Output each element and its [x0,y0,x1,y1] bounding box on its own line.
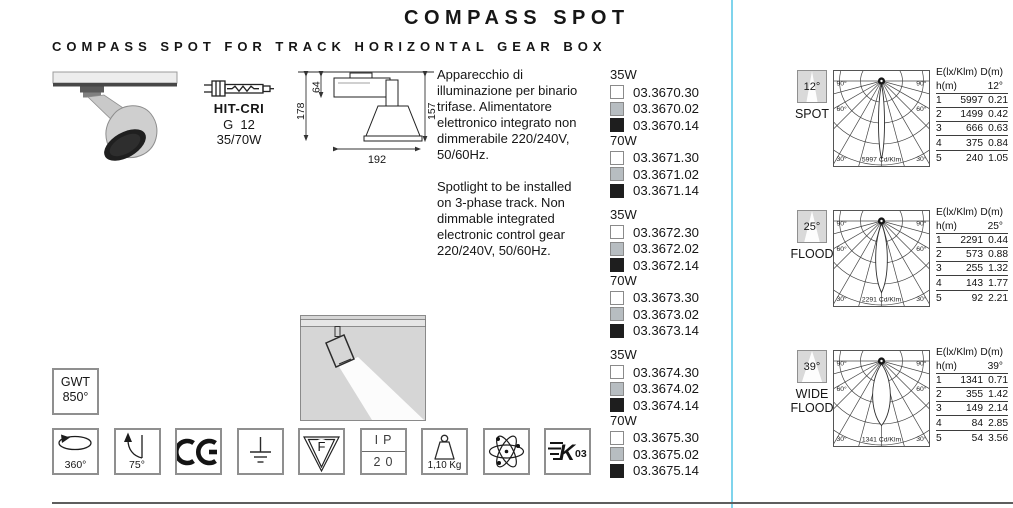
svg-text:90°: 90° [916,80,927,88]
photometry-group-flood: 25° FLOOD 90°90°60°60°30°30°2291 Cd/Klm … [790,202,1013,317]
col-header-angle: 39° [988,361,1008,372]
page-title: COMPASS SPOT [404,7,630,30]
product-code-row: 03.3670.02 [610,101,724,118]
photometry-table-row: 5922.21 [936,291,1008,305]
finish-swatch-grey [610,447,624,461]
ce-mark-icon [175,428,222,475]
page-fold-divider [731,0,733,508]
wattage-label: 35W [610,68,724,82]
photometry-table-row: 113410.71 [936,374,1008,388]
wattage-label: 70W [610,134,724,148]
wattage-label: 70W [610,414,724,428]
photometry-table-row: 4842.85 [936,416,1008,430]
height-value: 1 [936,375,946,386]
product-code: 03.3671.02 [633,167,699,182]
illuminance-value: 1499 [946,109,983,120]
product-code-row: 03.3670.14 [610,117,724,134]
glow-wire-test-badge: GWT 850° [52,368,99,415]
finish-swatch-white [610,225,624,239]
col-header-h: h(m) [936,221,957,232]
product-code-row: 03.3670.30 [610,84,724,101]
product-code-row: 03.3675.30 [610,430,724,447]
diameter-value: 0.21 [983,95,1008,106]
photometry-table-row: 32551.32 [936,262,1008,276]
weight-label: 1,10 Kg [423,460,466,471]
photometry-table: E(lx/Klm)D(m)h(m)12°159970.21214990.4236… [936,65,1008,165]
col-header-angle: 25° [988,221,1008,232]
finish-swatch-white [610,151,624,165]
product-code-row: 03.3673.14 [610,323,724,340]
catalog-page: COMPASS SPOT COMPASS SPOT FOR TRACK HORI… [0,0,1013,508]
rotation-360-label: 360° [54,459,97,471]
dim-total-height: 178 [296,102,307,120]
ip-rating-icon: IP 20 [360,428,407,475]
product-code-row: 03.3671.02 [610,166,724,183]
height-value: 4 [936,278,946,289]
product-code: 03.3672.30 [633,225,699,240]
photometry-table-row: 214990.42 [936,108,1008,122]
height-value: 3 [936,403,946,414]
illuminance-value: 2291 [946,235,983,246]
svg-text:60°: 60° [837,245,848,253]
product-code: 03.3673.30 [633,290,699,305]
dim-width: 192 [368,154,386,166]
svg-text:60°: 60° [916,245,927,253]
height-value: 1 [936,235,946,246]
photometry-table-row: 5543.56 [936,431,1008,445]
product-code: 03.3674.14 [633,398,699,413]
beam-angle-value: 12° [804,81,821,93]
finish-swatch-grey [610,167,624,181]
svg-text:60°: 60° [916,105,927,113]
diameter-value: 1.42 [983,389,1008,400]
max-intensity-label: 2291 Cd/Klm [862,297,902,304]
lamp-spec-block: HIT-CRI G 12 35/70W [199,101,279,148]
photometry-table-row: 23551.42 [936,388,1008,402]
svg-text:60°: 60° [837,385,848,393]
atom-icon [483,428,530,475]
svg-text:30°: 30° [916,155,927,163]
weight-icon: 1,10 Kg [421,428,468,475]
lamp-wattage: 35/70W [199,132,279,148]
col-header-d: D(m) [980,347,1008,358]
product-code: 03.3674.30 [633,365,699,380]
photometry-table: E(lx/Klm)D(m)h(m)39°113410.7123551.42314… [936,345,1008,445]
product-code: 03.3673.02 [633,307,699,322]
product-code: 03.3670.14 [633,118,699,133]
k03-icon: K 03 [544,428,591,475]
gwt-temperature: 850° [54,390,97,405]
description-english: Spotlight to be installed on 3-phase tra… [437,179,615,259]
svg-text:90°: 90° [837,360,848,368]
product-code-row: 03.3671.30 [610,150,724,167]
diameter-value: 2.14 [983,403,1008,414]
photometry-table-row: 52401.05 [936,151,1008,165]
photometry-table-row: E(lx/Klm)D(m) [936,205,1008,219]
photometry-table-row: h(m)25° [936,219,1008,233]
description-italian: Apparecchio di illuminazione per binario… [437,67,615,163]
finish-swatch-black [610,324,624,338]
product-code-row: 03.3674.14 [610,397,724,414]
illuminance-value: 149 [946,403,983,414]
lamp-base: G 12 [199,117,279,133]
svg-text:90°: 90° [916,360,927,368]
product-code: 03.3672.14 [633,258,699,273]
photometry-table-row: 122910.44 [936,234,1008,248]
halogen-lamp-icon [203,76,275,102]
col-header-d: D(m) [980,67,1008,78]
col-header-angle: 12° [988,81,1008,92]
dim-body-height: 157 [426,102,436,120]
polar-diagram: 90°90°60°60°30°30°2291 Cd/Klm [833,210,930,307]
height-value: 5 [936,293,946,304]
finish-swatch-grey [610,102,624,116]
f-mark-icon: F [298,428,345,475]
dim-box-height: 64 [311,81,323,93]
height-value: 5 [936,433,946,444]
dimension-drawing: 178 64 157 192 [296,60,436,168]
height-value: 2 [936,249,946,260]
wattage-label: 35W [610,208,724,222]
photometry-table-row: 159970.21 [936,94,1008,108]
diameter-value: 1.32 [983,263,1008,274]
product-code-row: 03.3674.30 [610,364,724,381]
page-subtitle: COMPASS SPOT FOR TRACK HORIZONTAL GEAR B… [52,39,607,54]
ip-rating-top: IP [362,430,405,452]
photometry-table: E(lx/Klm)D(m)h(m)25°122910.4425730.88325… [936,205,1008,305]
product-code: 03.3670.02 [633,101,699,116]
tilt-75-icon: 75° [114,428,161,475]
height-value: 2 [936,109,946,120]
product-codes-block: 35W03.3672.3003.3672.0203.3672.1470W03.3… [610,208,724,339]
col-header-e: E(lx/Klm) [936,207,977,218]
photometry-group-wide-flood: 39° WIDE FLOOD 90°90°60°60°30°30°1341 Cd… [790,342,1013,457]
svg-text:90°: 90° [837,220,848,228]
finish-swatch-black [610,118,624,132]
product-photo-track-spotlight [50,62,182,170]
photometry-table-row: 31492.14 [936,402,1008,416]
illuminance-value: 1341 [946,375,983,386]
illuminance-value: 255 [946,263,983,274]
gwt-label: GWT [54,375,97,390]
max-intensity-label: 5997 Cd/Klm [862,157,902,164]
product-codes-block: 35W03.3674.3003.3674.0203.3674.1470W03.3… [610,348,724,479]
svg-text:90°: 90° [916,220,927,228]
finish-swatch-white [610,365,624,379]
diameter-value: 0.63 [983,123,1008,134]
beam-angle-badge: 39° [797,350,827,383]
illuminance-value: 84 [946,418,983,429]
diameter-value: 2.85 [983,418,1008,429]
beam-application-illustration [300,315,426,421]
product-code-row: 03.3673.30 [610,290,724,307]
f-mark-letter: F [318,439,326,454]
illuminance-value: 355 [946,389,983,400]
photometry-table-row: E(lx/Klm)D(m) [936,65,1008,79]
rotation-360-icon: 360° [52,428,99,475]
col-header-d: D(m) [980,207,1008,218]
height-value: 5 [936,153,946,164]
wattage-label: 35W [610,348,724,362]
col-header-e: E(lx/Klm) [936,347,977,358]
svg-text:30°: 30° [837,435,848,443]
earth-ground-icon [237,428,284,475]
photometry-table-row: 43750.84 [936,136,1008,150]
diameter-value: 1.77 [983,278,1008,289]
finish-swatch-white [610,85,624,99]
beam-angle-badge: 25° [797,210,827,243]
product-code: 03.3672.02 [633,241,699,256]
polar-diagram: 90°90°60°60°30°30°1341 Cd/Klm [833,350,930,447]
col-header-h: h(m) [936,361,957,372]
svg-text:30°: 30° [916,435,927,443]
diameter-value: 1.05 [983,153,1008,164]
tilt-75-label: 75° [116,459,159,471]
svg-text:30°: 30° [837,155,848,163]
svg-text:30°: 30° [916,295,927,303]
product-code: 03.3671.14 [633,183,699,198]
diameter-value: 3.56 [983,433,1008,444]
illuminance-value: 143 [946,278,983,289]
finish-swatch-grey [610,307,624,321]
product-code-row: 03.3672.02 [610,241,724,258]
svg-text:60°: 60° [837,105,848,113]
illuminance-value: 573 [946,249,983,260]
bottom-rule [52,502,1013,504]
ip-rating-bottom: 20 [362,452,405,474]
product-codes-block: 35W03.3670.3003.3670.0203.3670.1470W03.3… [610,68,724,199]
illuminance-value: 92 [946,293,983,304]
product-code-row: 03.3673.02 [610,306,724,323]
lamp-type: HIT-CRI [199,101,279,117]
svg-text:30°: 30° [837,295,848,303]
product-code: 03.3675.02 [633,447,699,462]
photometry-table-row: h(m)39° [936,359,1008,373]
wattage-label: 70W [610,274,724,288]
height-value: 1 [936,95,946,106]
svg-text:60°: 60° [916,385,927,393]
illuminance-value: 240 [946,153,983,164]
finish-swatch-white [610,291,624,305]
photometry-table-row: 41431.77 [936,276,1008,290]
illuminance-value: 375 [946,138,983,149]
finish-swatch-black [610,464,624,478]
description-block: Apparecchio di illuminazione per binario… [437,67,615,275]
k03-number: 03 [575,448,587,460]
product-code-row: 03.3674.02 [610,381,724,398]
product-code: 03.3673.14 [633,323,699,338]
product-code: 03.3675.14 [633,463,699,478]
illuminance-value: 54 [946,433,983,444]
height-value: 2 [936,389,946,400]
photometry-table-row: h(m)12° [936,79,1008,93]
height-value: 4 [936,138,946,149]
product-code-row: 03.3672.14 [610,257,724,274]
height-value: 3 [936,123,946,134]
photometry-table-row: E(lx/Klm)D(m) [936,345,1008,359]
beam-angle-badge: 12° [797,70,827,103]
col-header-e: E(lx/Klm) [936,67,977,78]
finish-swatch-white [610,431,624,445]
finish-swatch-grey [610,242,624,256]
product-code: 03.3671.30 [633,150,699,165]
diameter-value: 0.88 [983,249,1008,260]
illuminance-value: 666 [946,123,983,134]
col-header-h: h(m) [936,81,957,92]
polar-diagram: 90°90°60°60°30°30°5997 Cd/Klm [833,70,930,167]
beam-angle-value: 39° [804,361,821,373]
photometry-group-spot: 12° SPOT 90°90°60°60°30°30°5997 Cd/Klm E… [790,62,1013,177]
height-value: 4 [936,418,946,429]
diameter-value: 0.42 [983,109,1008,120]
product-code: 03.3674.02 [633,381,699,396]
product-code-row: 03.3671.14 [610,183,724,200]
beam-angle-value: 25° [804,221,821,233]
diameter-value: 2.21 [983,293,1008,304]
height-value: 3 [936,263,946,274]
finish-swatch-grey [610,382,624,396]
finish-swatch-black [610,398,624,412]
finish-swatch-black [610,258,624,272]
product-code: 03.3670.30 [633,85,699,100]
illuminance-value: 5997 [946,95,983,106]
max-intensity-label: 1341 Cd/Klm [862,437,902,444]
diameter-value: 0.71 [983,375,1008,386]
photometry-table-row: 25730.88 [936,248,1008,262]
diameter-value: 0.84 [983,138,1008,149]
finish-swatch-black [610,184,624,198]
svg-text:90°: 90° [837,80,848,88]
product-code-row: 03.3675.02 [610,446,724,463]
product-code-row: 03.3672.30 [610,224,724,241]
photometry-table-row: 36660.63 [936,122,1008,136]
diameter-value: 0.44 [983,235,1008,246]
product-code: 03.3675.30 [633,430,699,445]
product-code-row: 03.3675.14 [610,463,724,480]
